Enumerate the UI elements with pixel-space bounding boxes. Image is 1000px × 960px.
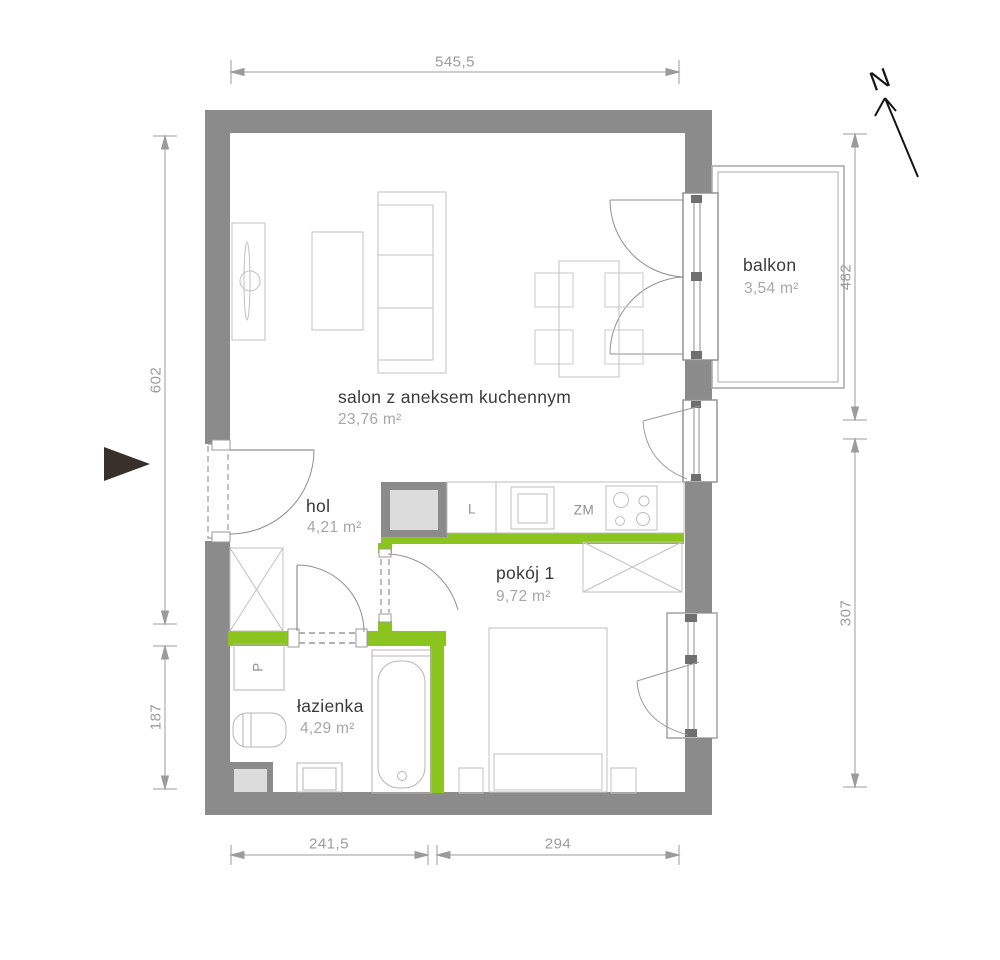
dim-left-upper: 602	[148, 367, 165, 394]
dishwasher-label: ZM	[574, 503, 595, 518]
balcony-door	[610, 193, 718, 360]
room-label-balkon: balkon	[743, 255, 796, 276]
living-room-window	[643, 400, 717, 482]
balcony-outline	[712, 166, 844, 388]
coffee-table	[312, 232, 363, 330]
bathroom-door	[288, 565, 367, 647]
stove	[606, 486, 657, 530]
room-area-pokoj1: 9,72 m²	[496, 588, 551, 606]
room-area-lazienka: 4,29 m²	[300, 720, 355, 738]
room-label-salon: salon z aneksem kuchennym	[338, 387, 571, 408]
dining-set	[535, 261, 643, 377]
room-area-balkon: 3,54 m²	[744, 280, 799, 298]
fridge-label: L	[468, 502, 476, 517]
wardrobe-bedroom	[583, 542, 682, 592]
room-label-hol: hol	[306, 496, 330, 517]
bathtub	[372, 650, 431, 793]
washbasin	[297, 763, 342, 792]
wardrobe-hall	[230, 548, 283, 631]
sofa	[378, 192, 446, 373]
entrance-door	[208, 440, 314, 542]
room-label-lazienka: łazienka	[297, 696, 364, 717]
dimension-lines	[153, 60, 867, 865]
dim-bottom-left: 241,5	[309, 836, 349, 853]
room-label-pokoj1: pokój 1	[496, 563, 555, 584]
bedroom-door	[379, 549, 458, 622]
toilet	[233, 713, 286, 747]
room-area-hol: 4,21 m²	[307, 519, 362, 537]
dim-left-lower: 187	[148, 704, 165, 731]
dim-top: 545,5	[435, 54, 475, 71]
nightstand-left	[459, 768, 483, 793]
floorplan-drawing	[0, 0, 1000, 960]
dim-right-upper: 482	[838, 264, 855, 291]
washer-label: P	[251, 662, 266, 672]
tv-unit	[232, 223, 265, 340]
bed	[459, 628, 636, 793]
dim-right-lower: 307	[838, 600, 855, 627]
kitchen-counter	[447, 482, 684, 533]
room-area-salon: 23,76 m²	[338, 411, 402, 429]
dim-bottom-right: 294	[545, 836, 572, 853]
entrance-arrow-icon	[104, 447, 150, 481]
nightstand-right	[611, 768, 636, 793]
floor-plan: salon z aneksem kuchennym 23,76 m² hol 4…	[0, 0, 1000, 960]
bedroom-window	[637, 613, 717, 738]
north-arrow-icon	[875, 98, 918, 177]
